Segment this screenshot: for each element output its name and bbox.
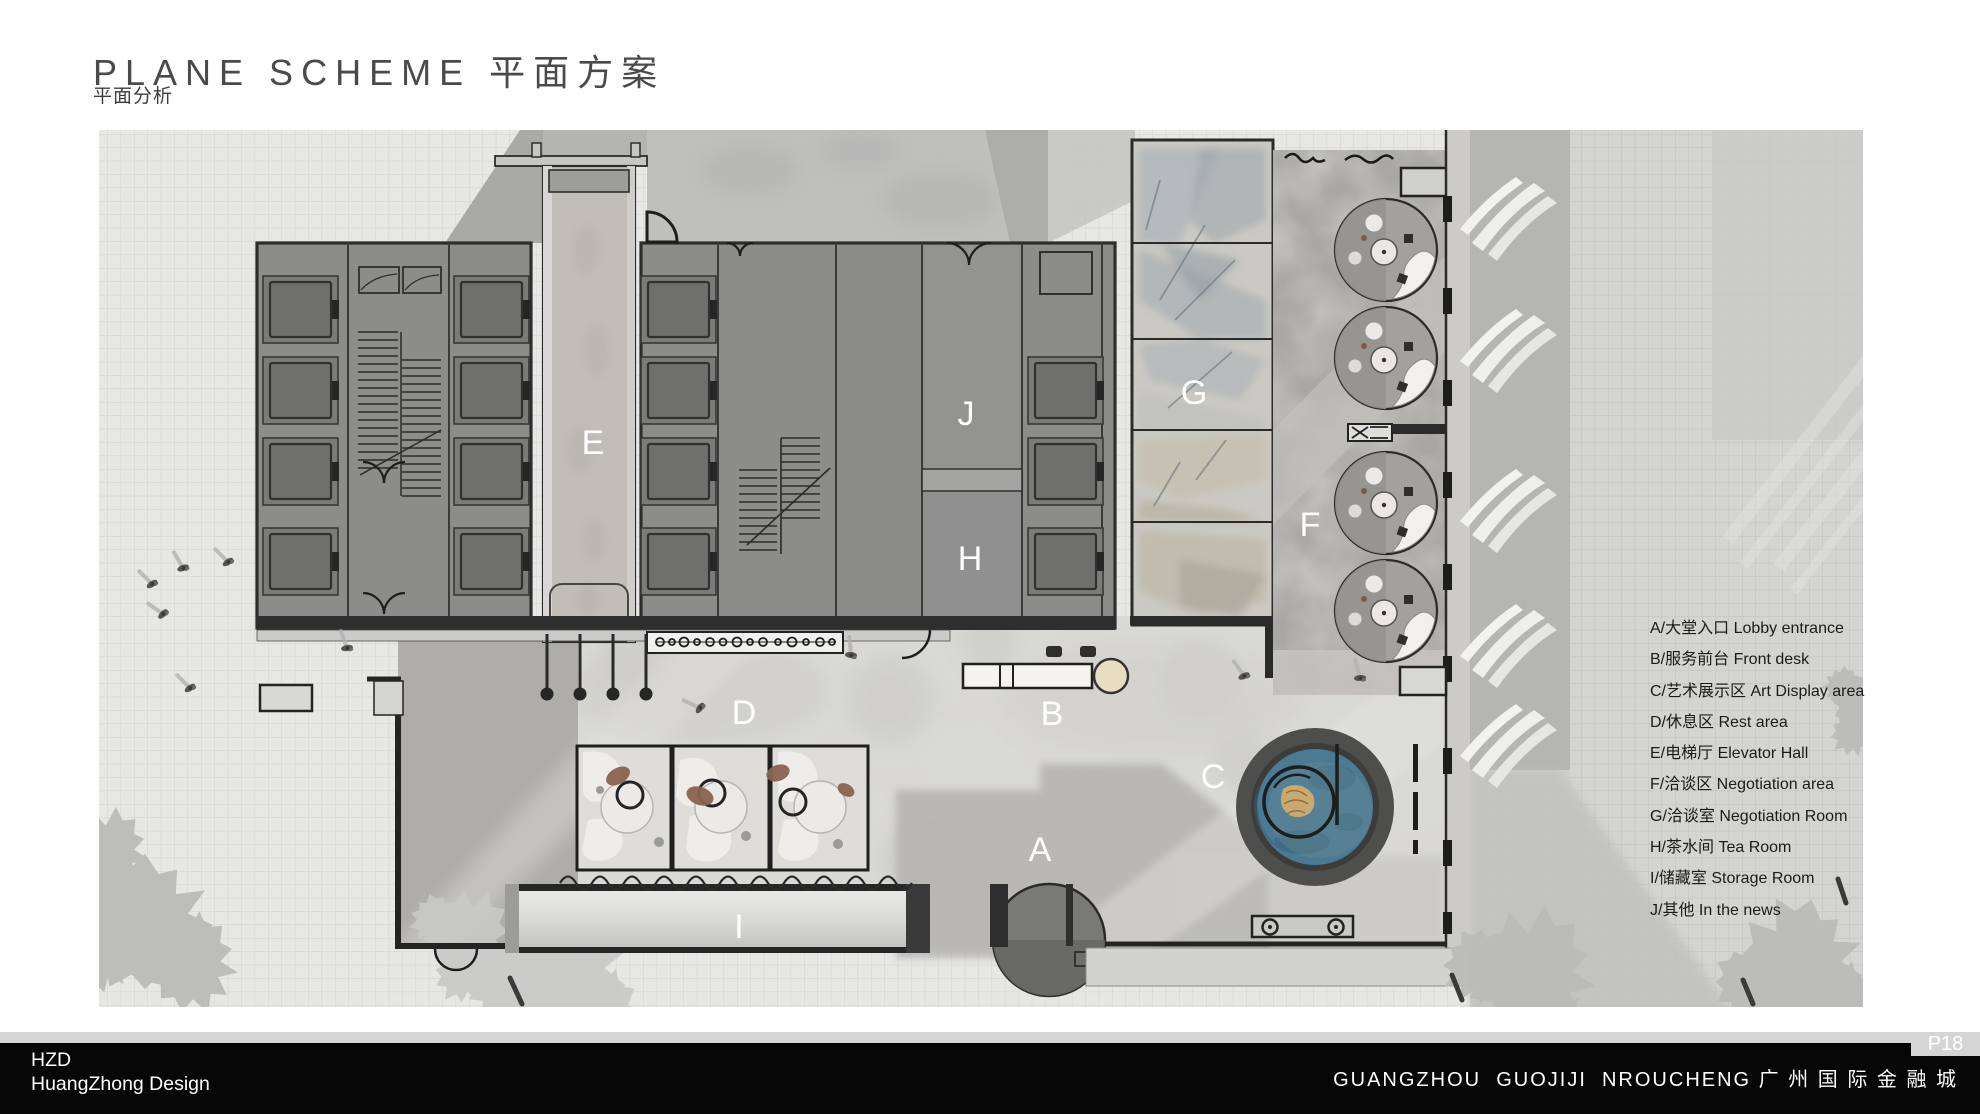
svg-text:B: B xyxy=(1041,695,1064,733)
svg-text:I: I xyxy=(734,908,743,946)
svg-text:D: D xyxy=(732,694,757,732)
svg-text:E: E xyxy=(582,424,605,462)
svg-text:F: F xyxy=(1300,506,1321,544)
svg-text:J: J xyxy=(958,395,975,433)
svg-text:H: H xyxy=(958,540,983,578)
svg-text:G: G xyxy=(1181,374,1207,412)
svg-text:A: A xyxy=(1029,831,1052,869)
svg-text:C: C xyxy=(1201,758,1226,796)
